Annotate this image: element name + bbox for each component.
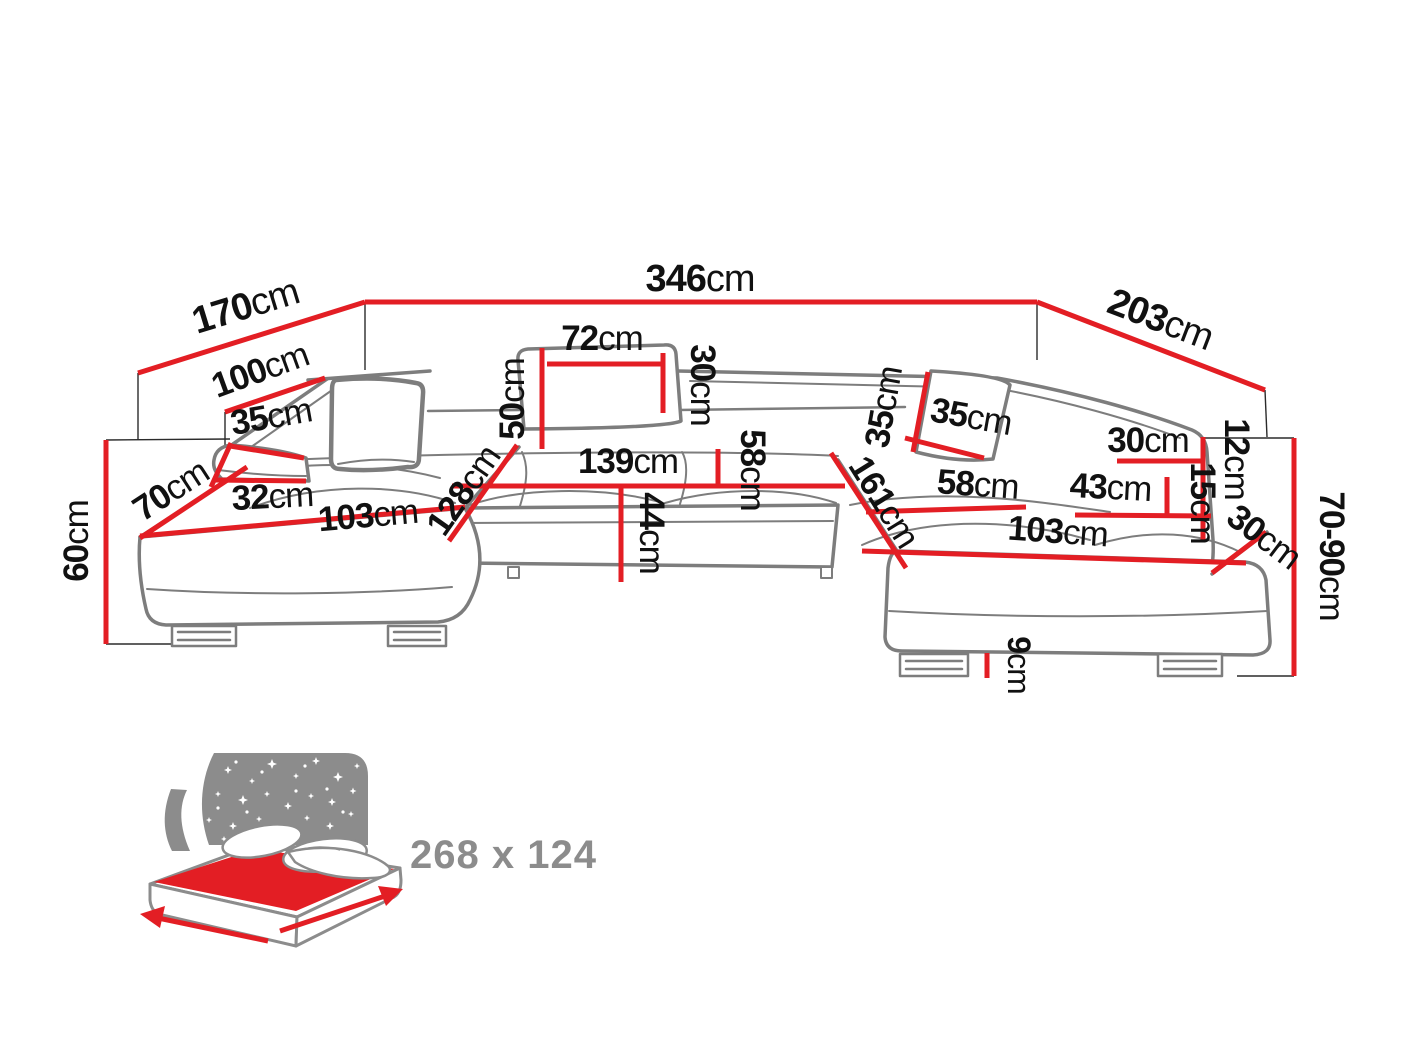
night-sky-sliver bbox=[165, 789, 190, 851]
dim-leg-height-label: 9cm bbox=[1001, 636, 1037, 693]
dim-center-seat-depth-label: 58cm bbox=[733, 429, 772, 511]
diagram-svg: 346cm 170cm 203cm 100cm 35cm 32cm 70cm 1… bbox=[0, 0, 1408, 1056]
center-leg-left bbox=[508, 567, 519, 578]
left-chaise-legs bbox=[172, 626, 446, 646]
right-chaise-legs bbox=[900, 654, 1222, 676]
dim-backrest-height-label: 50cm bbox=[493, 358, 532, 440]
sleeping-function-icon: 268 x 124 bbox=[140, 753, 597, 946]
dim-left-armrest-height-label: 35cm bbox=[227, 390, 314, 443]
dim-headrest-width-label: 72cm bbox=[561, 319, 643, 358]
dim-back-width-label: 346cm bbox=[645, 258, 754, 300]
sofa-dimension-diagram: 346cm 170cm 203cm 100cm 35cm 32cm 70cm 1… bbox=[0, 0, 1408, 1056]
back-pillow bbox=[331, 379, 423, 471]
dim-left-depth-label: 170cm bbox=[187, 270, 304, 342]
dim-right-edge-lower-label: 15cm bbox=[1183, 462, 1222, 544]
dim-right-chaise-length-label: 103cm bbox=[1007, 509, 1110, 555]
dim-center-seat-width-label: 139cm bbox=[578, 442, 678, 481]
right-chaise-body bbox=[885, 551, 1270, 655]
dim-seat-height-left-label: 60cm bbox=[57, 500, 96, 582]
dim-right-armrest-top-label: 30cm bbox=[1107, 421, 1189, 460]
sleeping-area-size-label: 268 x 124 bbox=[410, 833, 597, 877]
dim-overall-height-label: 70-90cm bbox=[1312, 491, 1351, 620]
dim-right-chaise-diagonal-label: 161cm bbox=[841, 449, 927, 555]
dim-right-seat-depth-label: 58cm bbox=[936, 462, 1020, 507]
dim-headrest-height-label: 30cm bbox=[683, 344, 722, 426]
dim-right-armrest-width-label: 43cm bbox=[1069, 466, 1153, 509]
dim-left-armrest-width-label: 32cm bbox=[231, 475, 315, 518]
dim-center-seat-height-label: 44cm bbox=[632, 492, 671, 574]
center-leg-right bbox=[821, 567, 832, 578]
